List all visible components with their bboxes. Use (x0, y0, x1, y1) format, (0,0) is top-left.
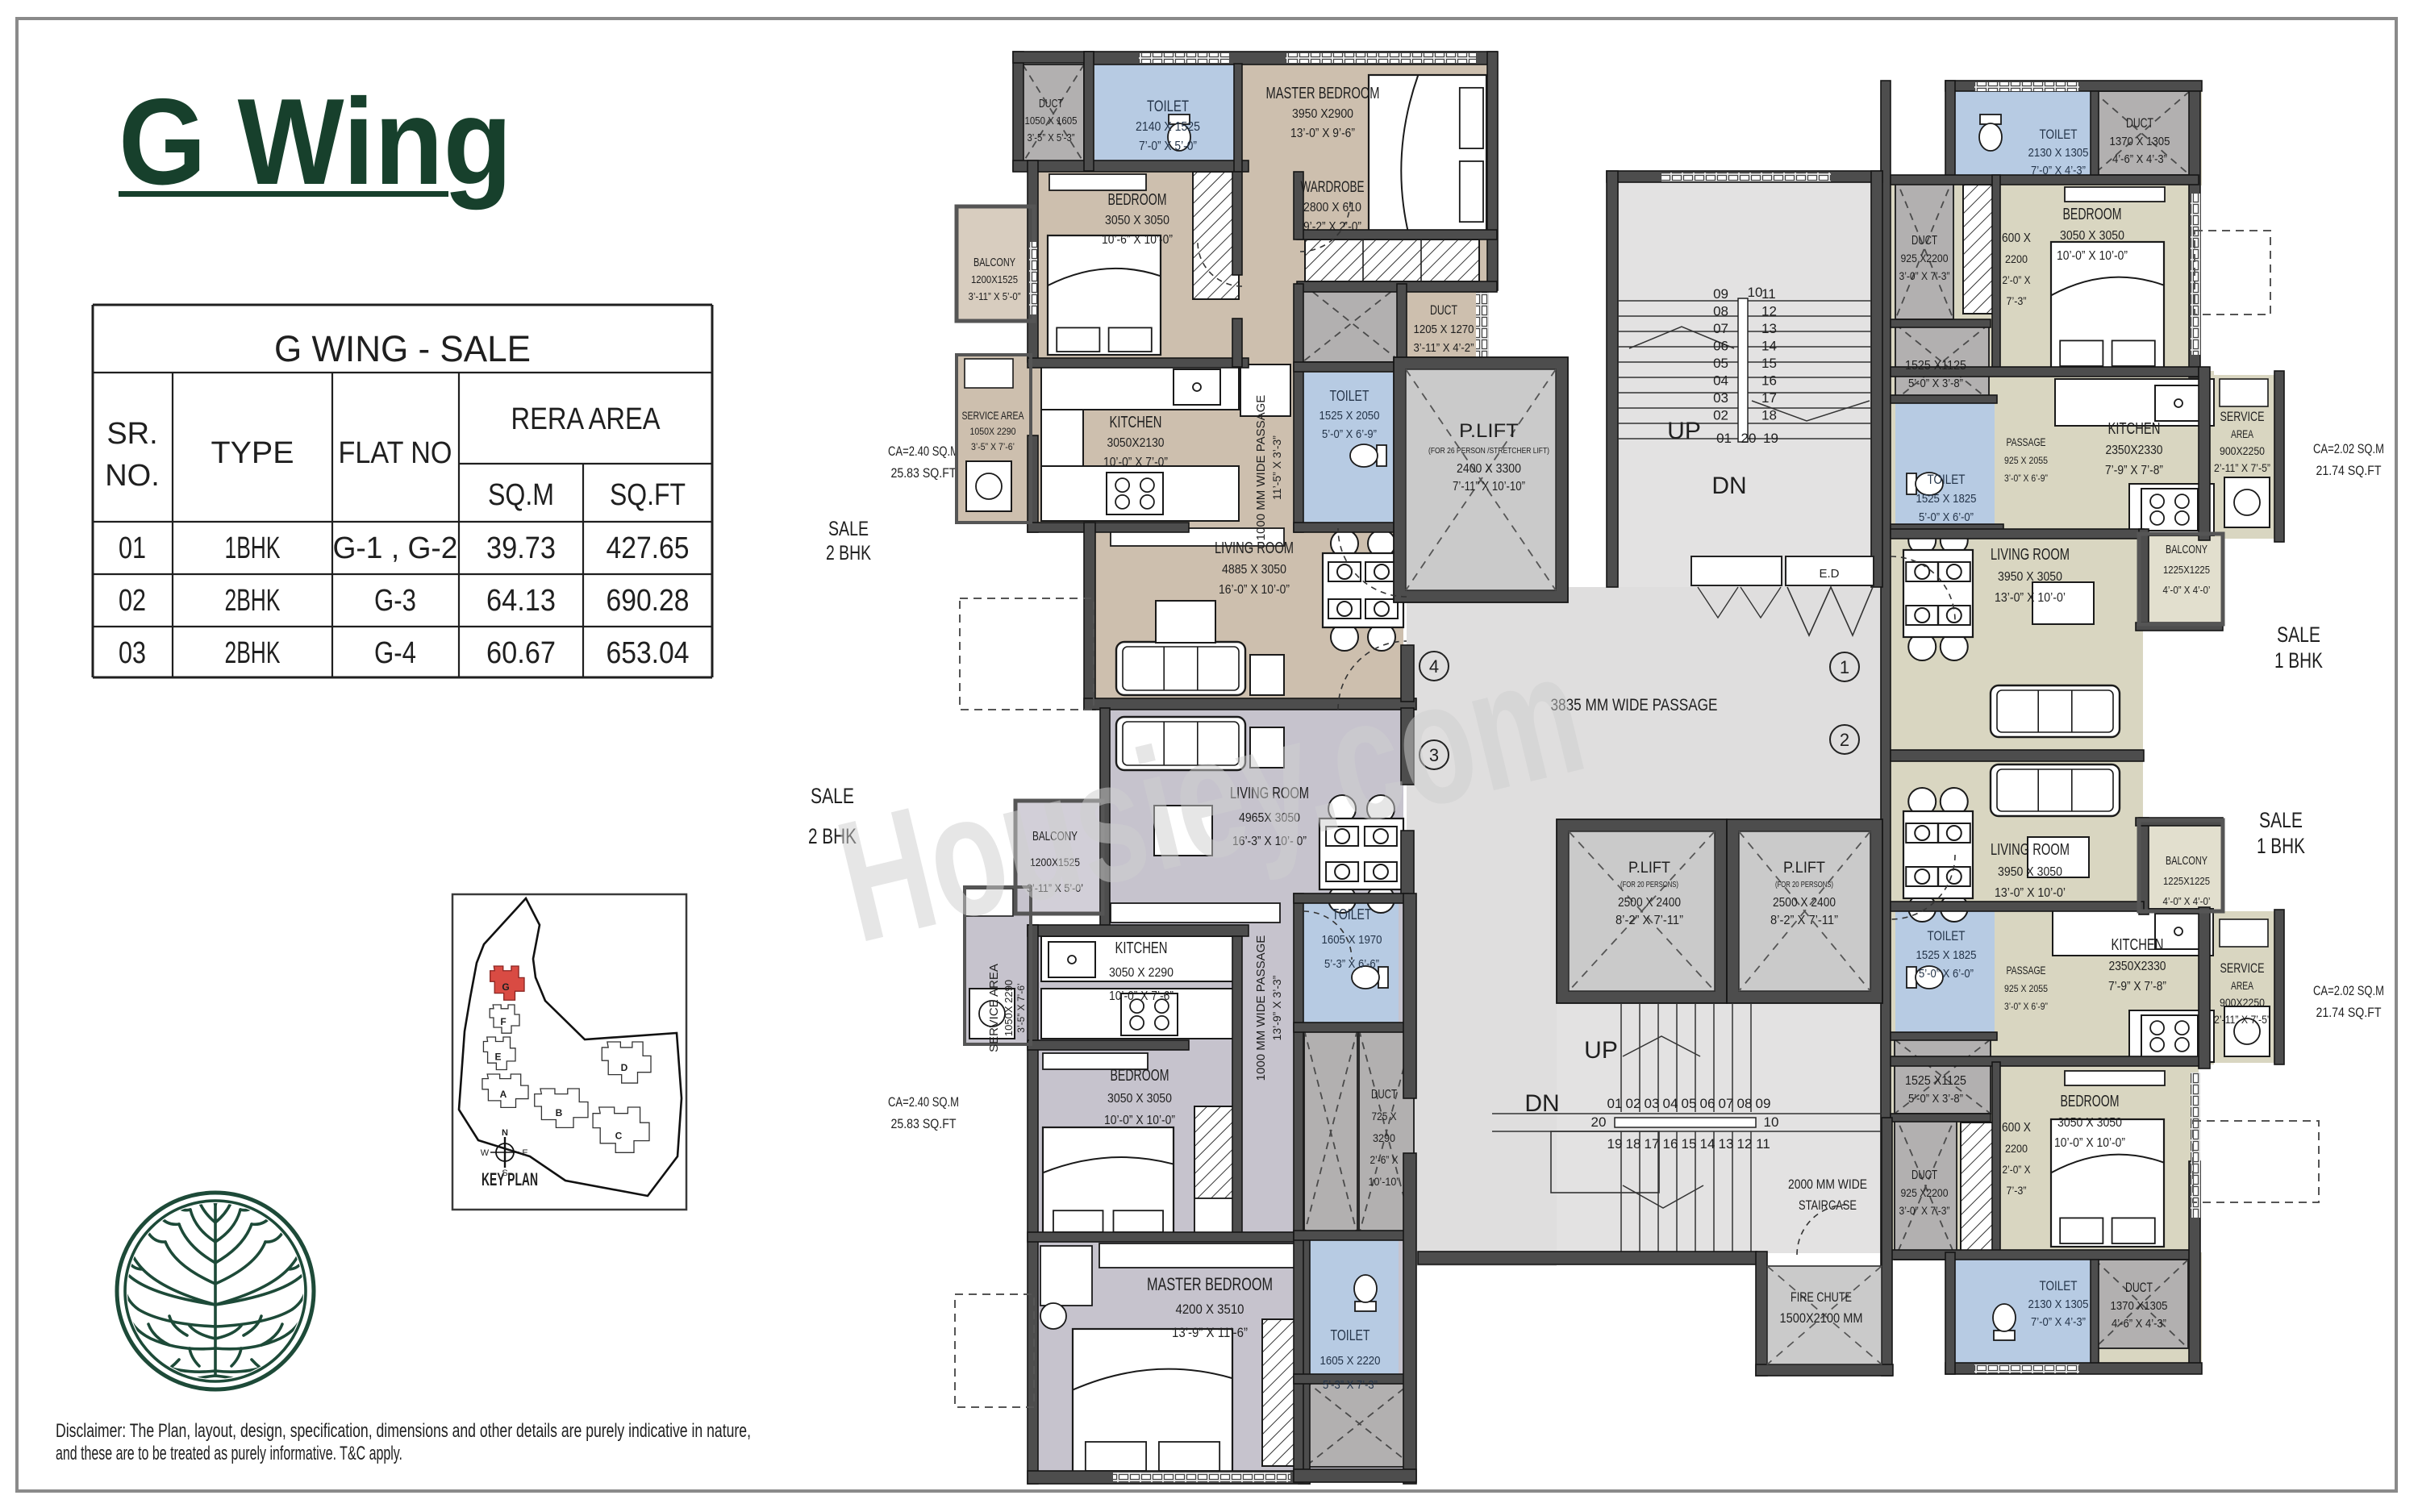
svg-text:FIRE CHUTE: FIRE CHUTE (1791, 1289, 1852, 1305)
svg-text:5’-0” X 3’-8”: 5’-0” X 3’-8” (1908, 1092, 1963, 1106)
svg-text:1525 X 1825: 1525 X 1825 (1916, 948, 1977, 962)
svg-text:RERA AREA: RERA AREA (511, 402, 661, 436)
svg-text:TOILET: TOILET (2040, 127, 2078, 142)
svg-text:10’-6” X 10’-0”: 10’-6” X 10’-0” (1102, 233, 1173, 247)
svg-text:39.73: 39.73 (486, 531, 556, 565)
svg-text:3’-5” X 7’-6’: 3’-5” X 7’-6’ (1015, 983, 1027, 1032)
svg-text:G-4: G-4 (374, 636, 416, 670)
svg-text:G Wing: G Wing (119, 73, 512, 210)
svg-text:2130 X 1305: 2130 X 1305 (2028, 1297, 2089, 1311)
svg-text:SERVICE: SERVICE (2220, 960, 2265, 976)
svg-text:1000 MM WIDE PASSAGE: 1000 MM WIDE PASSAGE (1254, 395, 1268, 541)
svg-text:3’-0” X 7’-3”: 3’-0” X 7’-3” (1899, 269, 1950, 282)
svg-text:DN: DN (1524, 1090, 1559, 1117)
svg-text:2200: 2200 (2005, 252, 2028, 265)
svg-text:1225X1225: 1225X1225 (2163, 875, 2210, 887)
svg-text:1525 X 1825: 1525 X 1825 (1916, 492, 1977, 506)
svg-text:1605 X 2220: 1605 X 2220 (1320, 1354, 1381, 1368)
svg-text:7’-0” X 5’-0”: 7’-0” X 5’-0” (1139, 140, 1197, 153)
svg-text:SR.: SR. (106, 417, 157, 451)
svg-text:E: E (494, 1052, 501, 1063)
svg-text:4’-6” X 4’-3”: 4’-6” X 4’-3” (2112, 1317, 2166, 1331)
svg-text:2’-0” X: 2’-0” X (2003, 1163, 2032, 1176)
svg-text:1: 1 (1840, 657, 1849, 677)
svg-text:P.LIFT: P.LIFT (1783, 860, 1825, 877)
svg-text:15: 15 (1761, 356, 1777, 371)
svg-text:12: 12 (1761, 304, 1777, 319)
svg-text:AREA: AREA (2231, 427, 2253, 440)
svg-text:900X2250: 900X2250 (2220, 996, 2265, 1009)
svg-text:2’-11” X 7’-5”: 2’-11” X 7’-5” (2214, 1013, 2270, 1026)
svg-text:SERVICE: SERVICE (2220, 409, 2265, 424)
svg-text:3’-0” X 7’-3”: 3’-0” X 7’-3” (1899, 1204, 1950, 1217)
svg-text:2140 X 1525: 2140 X 1525 (1136, 120, 1200, 134)
svg-text:SALE: SALE (2277, 623, 2320, 647)
svg-text:06: 06 (1713, 339, 1728, 354)
svg-text:TOILET: TOILET (1147, 98, 1189, 115)
svg-text:60.67: 60.67 (486, 636, 556, 670)
svg-text:SQ.M: SQ.M (488, 478, 554, 512)
svg-text:KITCHEN: KITCHEN (1110, 414, 1162, 431)
svg-text:03: 03 (119, 636, 146, 670)
svg-text:3050 X 3050: 3050 X 3050 (1107, 1092, 1172, 1106)
svg-text:STAIRCASE: STAIRCASE (1799, 1198, 1857, 1213)
svg-text:19: 19 (1763, 431, 1778, 446)
svg-text:11: 11 (1756, 1136, 1770, 1152)
svg-text:10: 10 (1748, 285, 1763, 300)
svg-text:3950 X 3050: 3950 X 3050 (1998, 570, 2062, 584)
svg-text:25.83 SQ.FT: 25.83 SQ.FT (891, 1116, 957, 1131)
svg-text:TOILET: TOILET (1330, 388, 1370, 404)
svg-text:4885 X 3050: 4885 X 3050 (1222, 563, 1286, 577)
svg-text:KITCHEN: KITCHEN (2112, 936, 2164, 954)
svg-text:2500 X 2400: 2500 X 2400 (1773, 896, 1836, 910)
svg-text:CA=2.40 SQ.M: CA=2.40 SQ.M (888, 444, 959, 459)
svg-text:SERVICE AREA: SERVICE AREA (987, 964, 1001, 1052)
svg-text:06: 06 (1700, 1096, 1716, 1111)
svg-text:1 BHK: 1 BHK (2274, 648, 2323, 673)
svg-text:09: 09 (1756, 1096, 1771, 1111)
svg-text:BEDROOM: BEDROOM (1111, 1067, 1169, 1085)
svg-text:07: 07 (1719, 1096, 1734, 1111)
svg-text:01: 01 (119, 531, 146, 565)
svg-text:2BHK: 2BHK (225, 584, 281, 618)
svg-text:02: 02 (1713, 408, 1728, 423)
svg-text:TOILET: TOILET (1331, 1327, 1370, 1343)
svg-text:11: 11 (1761, 286, 1776, 302)
svg-text:8’-2” X 7’-11”: 8’-2” X 7’-11” (1615, 914, 1683, 927)
svg-text:(FOR 20 PERSONS): (FOR 20 PERSONS) (1775, 881, 1833, 889)
svg-text:PASSAGE: PASSAGE (2007, 435, 2046, 448)
svg-text:9’-2” X 2’-0”: 9’-2” X 2’-0” (1303, 220, 1361, 234)
svg-text:BALCONY: BALCONY (973, 256, 1015, 269)
svg-text:2400 X 3300: 2400 X 3300 (1457, 462, 1521, 476)
svg-text:DUCT: DUCT (1371, 1088, 1397, 1102)
svg-text:13’-9” X 11’-6”: 13’-9” X 11’-6” (1172, 1325, 1248, 1340)
svg-text:KEY PLAN: KEY PLAN (482, 1169, 538, 1189)
svg-text:2800 X 610: 2800 X 610 (1303, 201, 1361, 215)
svg-text:1BHK: 1BHK (225, 531, 281, 565)
svg-text:18: 18 (1761, 408, 1777, 423)
svg-text:1605 X 1970: 1605 X 1970 (1322, 933, 1382, 947)
svg-text:A: A (500, 1089, 507, 1100)
svg-text:3290: 3290 (1373, 1131, 1395, 1144)
svg-text:4’-0” X 4’-0’: 4’-0” X 4’-0’ (2163, 584, 2211, 596)
svg-text:(FOR 20 PERSONS): (FOR 20 PERSONS) (1620, 881, 1678, 889)
svg-text:25.83 SQ.FT: 25.83 SQ.FT (891, 465, 957, 481)
svg-text:7’-3”: 7’-3” (2007, 294, 2027, 307)
svg-text:600 X: 600 X (2002, 1121, 2031, 1135)
svg-text:925 X2200: 925 X2200 (1901, 252, 1949, 264)
svg-text:2350X2330: 2350X2330 (2109, 960, 2166, 973)
svg-text:BEDROOM: BEDROOM (1108, 191, 1167, 209)
svg-text:Disclaimer: The Plan, layout,: Disclaimer: The Plan, layout, design, sp… (56, 1420, 751, 1442)
svg-text:LIVING ROOM: LIVING ROOM (1215, 539, 1294, 557)
svg-text:17: 17 (1761, 390, 1777, 406)
svg-text:5’-0” X 6’-9”: 5’-0” X 6’-9” (1322, 427, 1377, 441)
svg-text:16: 16 (1663, 1136, 1678, 1152)
svg-text:TOILET: TOILET (2040, 1278, 2078, 1293)
svg-text:03: 03 (1713, 390, 1728, 406)
svg-text:04: 04 (1663, 1096, 1678, 1111)
svg-text:10’-0” X 10’-0”: 10’-0” X 10’-0” (2057, 249, 2128, 263)
svg-text:01: 01 (1716, 431, 1732, 446)
svg-text:and these are to be treated as: and these are to be treated as purely in… (56, 1443, 402, 1464)
svg-text:600 X: 600 X (2002, 231, 2031, 245)
svg-text:3950 X2900: 3950 X2900 (1292, 107, 1353, 121)
svg-text:10’-0” X 7’-0”: 10’-0” X 7’-0” (1103, 456, 1168, 469)
svg-text:2130 X 1305: 2130 X 1305 (2028, 146, 2089, 160)
svg-text:BEDROOM: BEDROOM (2063, 206, 2122, 223)
svg-text:14: 14 (1761, 339, 1777, 354)
svg-text:UP: UP (1667, 418, 1701, 444)
svg-text:DUCT: DUCT (2126, 115, 2153, 131)
svg-text:TOILET: TOILET (1332, 906, 1372, 923)
svg-text:5’-0” X 3’-8”: 5’-0” X 3’-8” (1908, 377, 1963, 390)
svg-text:G WING - SALE: G WING - SALE (274, 328, 531, 369)
svg-text:B: B (556, 1107, 563, 1118)
svg-text:5’-3” X 7’-3”: 5’-3” X 7’-3” (1323, 1378, 1378, 1392)
svg-text:3050X2130: 3050X2130 (1107, 436, 1165, 450)
svg-text:1525 X 2050: 1525 X 2050 (1319, 409, 1380, 423)
svg-text:KITCHEN: KITCHEN (1115, 939, 1168, 957)
svg-text:925 X2200: 925 X2200 (1901, 1186, 1949, 1199)
svg-text:CA=2.40 SQ.M: CA=2.40 SQ.M (888, 1094, 959, 1110)
svg-text:BEDROOM: BEDROOM (2061, 1093, 2120, 1110)
svg-text:3’-0” X 6’-9”: 3’-0” X 6’-9” (2004, 473, 2048, 484)
svg-text:07: 07 (1713, 321, 1728, 336)
svg-text:G: G (502, 981, 509, 993)
svg-text:1205 X 1270: 1205 X 1270 (1414, 323, 1474, 336)
svg-text:G-3: G-3 (374, 584, 416, 618)
svg-text:1370 X 1305: 1370 X 1305 (2110, 135, 2170, 148)
svg-text:19: 19 (1607, 1136, 1623, 1152)
svg-text:SALE: SALE (828, 518, 869, 540)
svg-text:14: 14 (1700, 1136, 1716, 1152)
svg-text:1200X1525: 1200X1525 (971, 273, 1018, 285)
svg-text:20: 20 (1591, 1114, 1607, 1130)
svg-text:1050X 2290: 1050X 2290 (1003, 980, 1015, 1036)
svg-text:4’-0” X 4’-0’: 4’-0” X 4’-0’ (2163, 895, 2211, 907)
svg-text:2350X2330: 2350X2330 (2106, 444, 2163, 457)
svg-text:11’-5” X 3’-3”: 11’-5” X 3’-3” (1270, 435, 1283, 500)
svg-text:2’-6” X: 2’-6” X (1370, 1153, 1399, 1166)
svg-text:3’-11” X 5’-0”: 3’-11” X 5’-0” (969, 290, 1021, 302)
svg-text:P.LIFT: P.LIFT (1628, 860, 1670, 877)
svg-text:653.04: 653.04 (607, 636, 690, 670)
svg-text:21.74 SQ.FT: 21.74 SQ.FT (2316, 1005, 2382, 1020)
svg-text:1050X 2290: 1050X 2290 (970, 426, 1016, 437)
svg-text:2 BHK: 2 BHK (826, 542, 871, 564)
svg-text:2’-0” X: 2’-0” X (2003, 273, 2032, 286)
svg-text:16: 16 (1761, 373, 1777, 389)
svg-text:MASTER BEDROOM: MASTER BEDROOM (1266, 85, 1380, 102)
svg-text:20: 20 (1741, 431, 1757, 446)
svg-text:900X2250: 900X2250 (2220, 444, 2265, 457)
svg-text:WARDROBE: WARDROBE (1301, 179, 1365, 196)
svg-text:SQ.FT: SQ.FT (610, 478, 686, 512)
svg-text:BALCONY: BALCONY (2166, 543, 2207, 556)
svg-text:12: 12 (1737, 1136, 1753, 1152)
svg-text:3050 X 3050: 3050 X 3050 (2060, 229, 2124, 243)
svg-text:925 X 2055: 925 X 2055 (2004, 455, 2048, 466)
svg-text:3050 X 3050: 3050 X 3050 (1105, 214, 1169, 227)
svg-text:2: 2 (1840, 730, 1849, 750)
svg-text:4’-6” X 4’-3”: 4’-6” X 4’-3” (2112, 152, 2167, 166)
svg-text:13: 13 (1719, 1136, 1734, 1152)
svg-text:05: 05 (1713, 356, 1728, 371)
svg-text:17: 17 (1645, 1136, 1660, 1152)
svg-text:FLAT NO: FLAT NO (339, 436, 452, 470)
svg-text:10’-0” X 7’-6”: 10’-0” X 7’-6” (1109, 989, 1174, 1003)
svg-text:7’-11” X 10’-10”: 7’-11” X 10’-10” (1453, 480, 1525, 494)
svg-text:DUCT: DUCT (1911, 1168, 1937, 1182)
svg-text:03: 03 (1645, 1096, 1660, 1111)
svg-text:3’-5” X 7’-6’: 3’-5” X 7’-6’ (971, 441, 1015, 452)
svg-text:2000 MM WIDE: 2000 MM WIDE (1788, 1177, 1867, 1192)
svg-text:AREA: AREA (2231, 979, 2253, 992)
svg-text:10’-0” X 10’-0”: 10’-0” X 10’-0” (2054, 1136, 2125, 1150)
svg-text:05: 05 (1682, 1096, 1697, 1111)
svg-text:02: 02 (1626, 1096, 1641, 1111)
svg-text:3’-0” X 6’-9”: 3’-0” X 6’-9” (2004, 1001, 2048, 1012)
svg-text:KITCHEN: KITCHEN (2108, 420, 2161, 438)
svg-text:13: 13 (1761, 321, 1777, 336)
svg-text:18: 18 (1626, 1136, 1641, 1152)
svg-text:725 X: 725 X (1372, 1110, 1398, 1123)
svg-text:DUCT: DUCT (1911, 234, 1937, 248)
svg-text:3’-5” X 5’-3”: 3’-5” X 5’-3” (1028, 131, 1075, 144)
svg-text:13’-0” X 10’-0’: 13’-0” X 10’-0’ (1995, 886, 2066, 900)
svg-text:CA=2.02 SQ.M: CA=2.02 SQ.M (2313, 983, 2384, 998)
svg-text:1525 X1125: 1525 X1125 (1905, 1074, 1966, 1088)
svg-text:690.28: 690.28 (607, 584, 690, 618)
svg-text:TOILET: TOILET (1928, 928, 1966, 943)
svg-text:21.74 SQ.FT: 21.74 SQ.FT (2316, 463, 2382, 478)
svg-text:1225X1225: 1225X1225 (2163, 564, 2210, 576)
svg-text:NO.: NO. (105, 459, 160, 493)
svg-text:2500 X 2400: 2500 X 2400 (1618, 896, 1681, 910)
svg-text:3050 X 3050: 3050 X 3050 (2057, 1116, 2122, 1130)
svg-text:8’-2” X 7’-11”: 8’-2” X 7’-11” (1770, 914, 1838, 927)
svg-text:02: 02 (119, 584, 146, 618)
svg-text:10’-10”: 10’-10” (1369, 1175, 1400, 1188)
svg-text:1050 X 1605: 1050 X 1605 (1025, 115, 1078, 127)
svg-text:7’-0” X 4’-3”: 7’-0” X 4’-3” (2031, 1315, 2086, 1329)
svg-text:3’-11” X 4’-2”: 3’-11” X 4’-2” (1414, 341, 1474, 355)
svg-text:TOILET: TOILET (1928, 472, 1966, 487)
svg-text:1500X2100 MM: 1500X2100 MM (1780, 1310, 1863, 1326)
svg-text:MASTER BEDROOM: MASTER BEDROOM (1147, 1274, 1273, 1294)
svg-text:LIVING ROOM: LIVING ROOM (1991, 841, 2070, 859)
svg-text:427.65: 427.65 (607, 531, 690, 565)
svg-text:08: 08 (1713, 304, 1728, 319)
svg-text:C: C (615, 1131, 623, 1142)
svg-text:F: F (500, 1016, 506, 1027)
svg-text:7’-9” X 7’-8”: 7’-9” X 7’-8” (2105, 464, 2163, 477)
svg-text:N: N (502, 1128, 508, 1138)
svg-text:09: 09 (1713, 286, 1728, 302)
svg-text:10’-0” X 10’-0”: 10’-0” X 10’-0” (1104, 1114, 1175, 1127)
svg-text:(FOR 26 PERSON /STRETCHER LIFT: (FOR 26 PERSON /STRETCHER LIFT) (1428, 447, 1549, 456)
svg-text:08: 08 (1737, 1096, 1753, 1111)
svg-text:CA=2.02 SQ.M: CA=2.02 SQ.M (2313, 441, 2384, 456)
svg-text:DUCT: DUCT (2125, 1280, 2153, 1295)
svg-text:E: E (522, 1148, 527, 1158)
svg-text:2200: 2200 (2005, 1142, 2028, 1155)
svg-text:G-1 , G-2: G-1 , G-2 (333, 531, 458, 565)
svg-text:DUCT: DUCT (1039, 97, 1063, 110)
svg-text:1370 X1305: 1370 X1305 (2111, 1299, 2168, 1313)
svg-text:SALE: SALE (2259, 808, 2303, 832)
svg-text:04: 04 (1713, 373, 1728, 389)
svg-text:10: 10 (1764, 1114, 1779, 1130)
svg-text:TYPE: TYPE (211, 436, 294, 470)
svg-text:5’-0” X 6’-0”: 5’-0” X 6’-0” (1919, 967, 1974, 981)
svg-text:1000 MM WIDE PASSAGE: 1000 MM WIDE PASSAGE (1254, 935, 1268, 1081)
svg-text:16’-0” X 10’-0”: 16’-0” X 10’-0” (1219, 583, 1290, 597)
svg-text:925 X 2055: 925 X 2055 (2004, 983, 2048, 994)
svg-text:E.D: E.D (1819, 567, 1839, 581)
svg-text:3950 X 3050: 3950 X 3050 (1998, 865, 2062, 879)
svg-text:2’-11” X 7’-5”: 2’-11” X 7’-5” (2214, 461, 2270, 474)
svg-text:UP: UP (1584, 1037, 1618, 1064)
svg-text:BALCONY: BALCONY (2166, 854, 2207, 868)
svg-text:SERVICE AREA: SERVICE AREA (962, 409, 1024, 422)
svg-text:4200 X 3510: 4200 X 3510 (1176, 1302, 1244, 1317)
svg-text:13’-0” X 10’-0’: 13’-0” X 10’-0’ (1995, 591, 2066, 605)
svg-text:W: W (481, 1148, 490, 1158)
svg-text:PASSAGE: PASSAGE (2007, 964, 2046, 977)
svg-text:2BHK: 2BHK (225, 636, 281, 670)
svg-text:13’-0” X 9’-6”: 13’-0” X 9’-6” (1290, 127, 1355, 140)
svg-text:15: 15 (1682, 1136, 1697, 1152)
svg-text:5’-0” X 6’-0”: 5’-0” X 6’-0” (1919, 510, 1974, 524)
svg-text:7’-3”: 7’-3” (2007, 1184, 2027, 1197)
svg-text:3050 X 2290: 3050 X 2290 (1109, 966, 1174, 980)
svg-text:1525 X1125: 1525 X1125 (1905, 359, 1966, 373)
svg-text:7’-0” X 4’-3”: 7’-0” X 4’-3” (2031, 164, 2086, 177)
svg-text:DN: DN (1711, 473, 1746, 499)
svg-text:7’-9” X 7’-8”: 7’-9” X 7’-8” (2108, 980, 2166, 993)
svg-text:1 BHK: 1 BHK (2257, 834, 2305, 858)
svg-text:13’-9” X 3’-3”: 13’-9” X 3’-3” (1270, 975, 1283, 1040)
svg-text:P.LIFT: P.LIFT (1459, 420, 1519, 442)
svg-text:DUCT: DUCT (1430, 302, 1457, 318)
svg-text:01: 01 (1607, 1096, 1623, 1111)
svg-text:LIVING ROOM: LIVING ROOM (1991, 546, 2070, 564)
svg-text:64.13: 64.13 (486, 584, 556, 618)
svg-text:D: D (621, 1062, 628, 1073)
